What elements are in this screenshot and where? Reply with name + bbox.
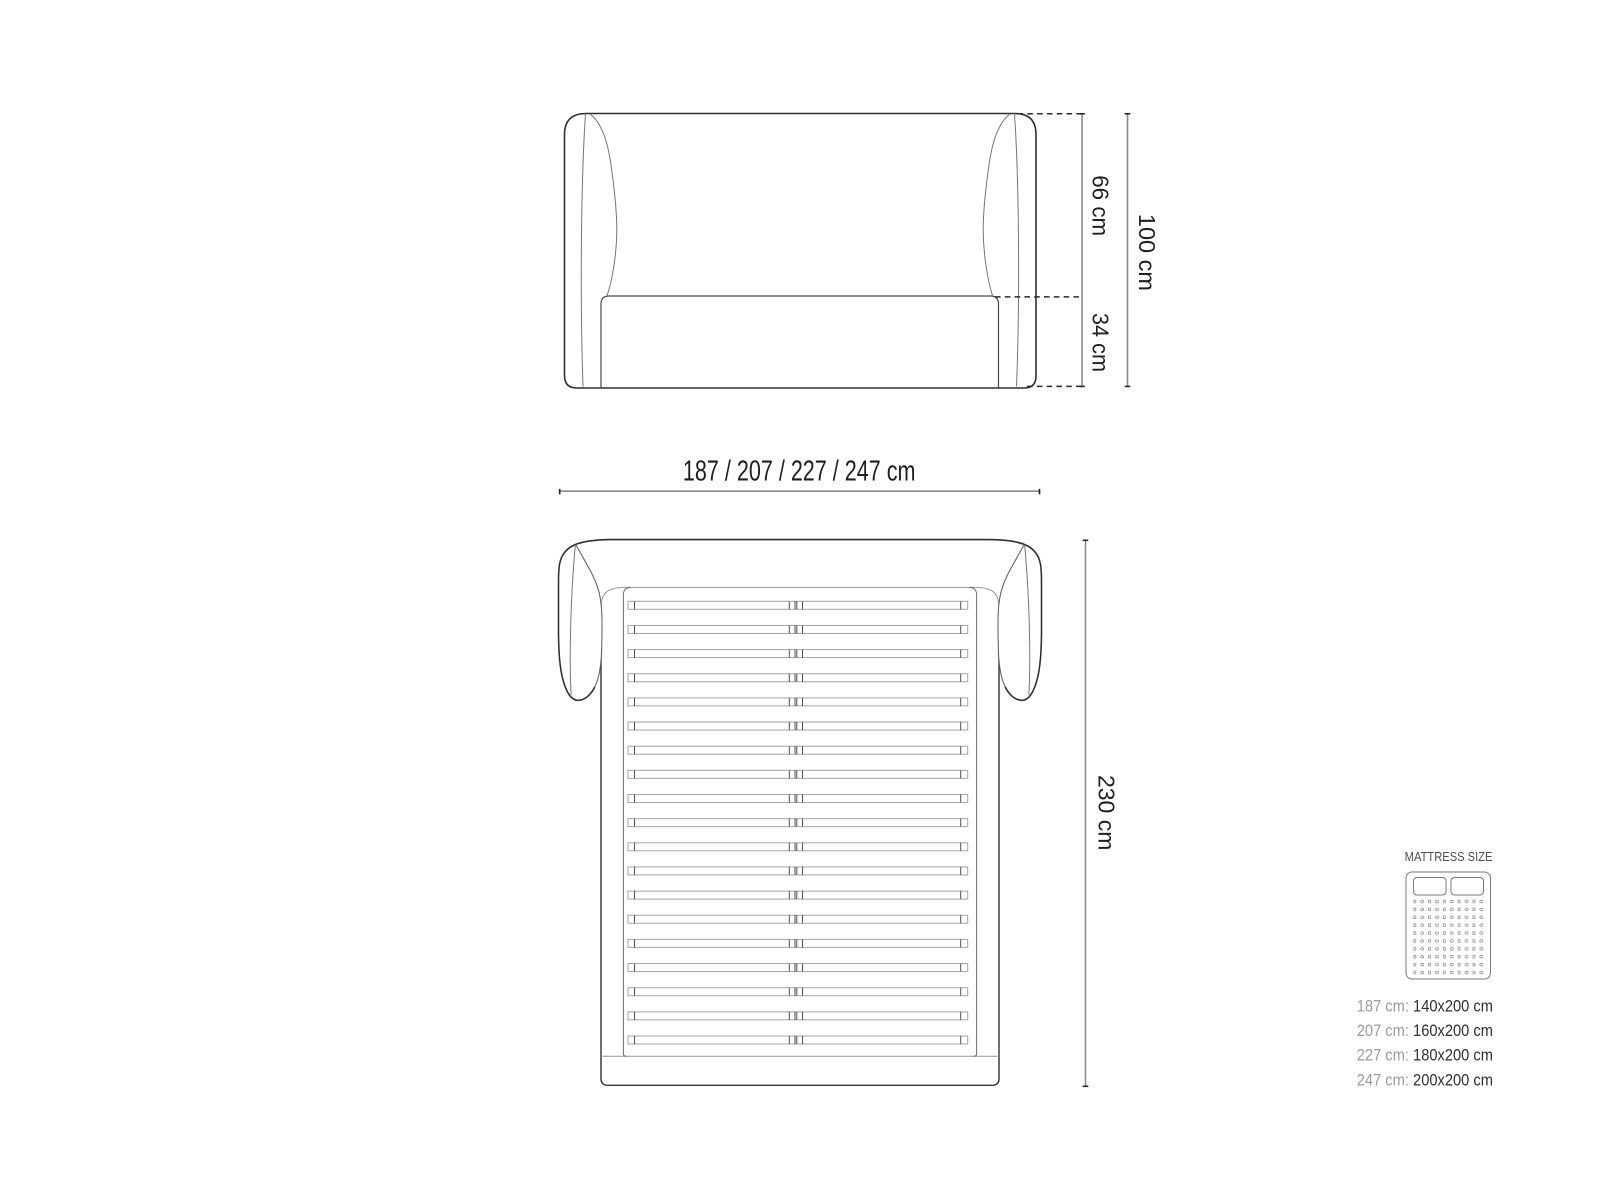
svg-text:66 cm: 66 cm: [1088, 175, 1114, 236]
svg-text:MATTRESS SIZE: MATTRESS SIZE: [1405, 849, 1493, 864]
svg-text:207 cm: 160x200 cm: 207 cm: 160x200 cm: [1357, 1022, 1493, 1040]
svg-text:247 cm: 200x200 cm: 247 cm: 200x200 cm: [1357, 1072, 1493, 1090]
svg-text:230 cm: 230 cm: [1094, 775, 1120, 851]
svg-text:100 cm: 100 cm: [1134, 214, 1160, 291]
svg-text:227 cm: 180x200 cm: 227 cm: 180x200 cm: [1357, 1047, 1493, 1065]
svg-text:34 cm: 34 cm: [1088, 313, 1114, 372]
svg-text:187 / 207 / 227 / 247 cm: 187 / 207 / 227 / 247 cm: [683, 456, 916, 488]
svg-text:187 cm: 140x200 cm: 187 cm: 140x200 cm: [1357, 998, 1493, 1016]
